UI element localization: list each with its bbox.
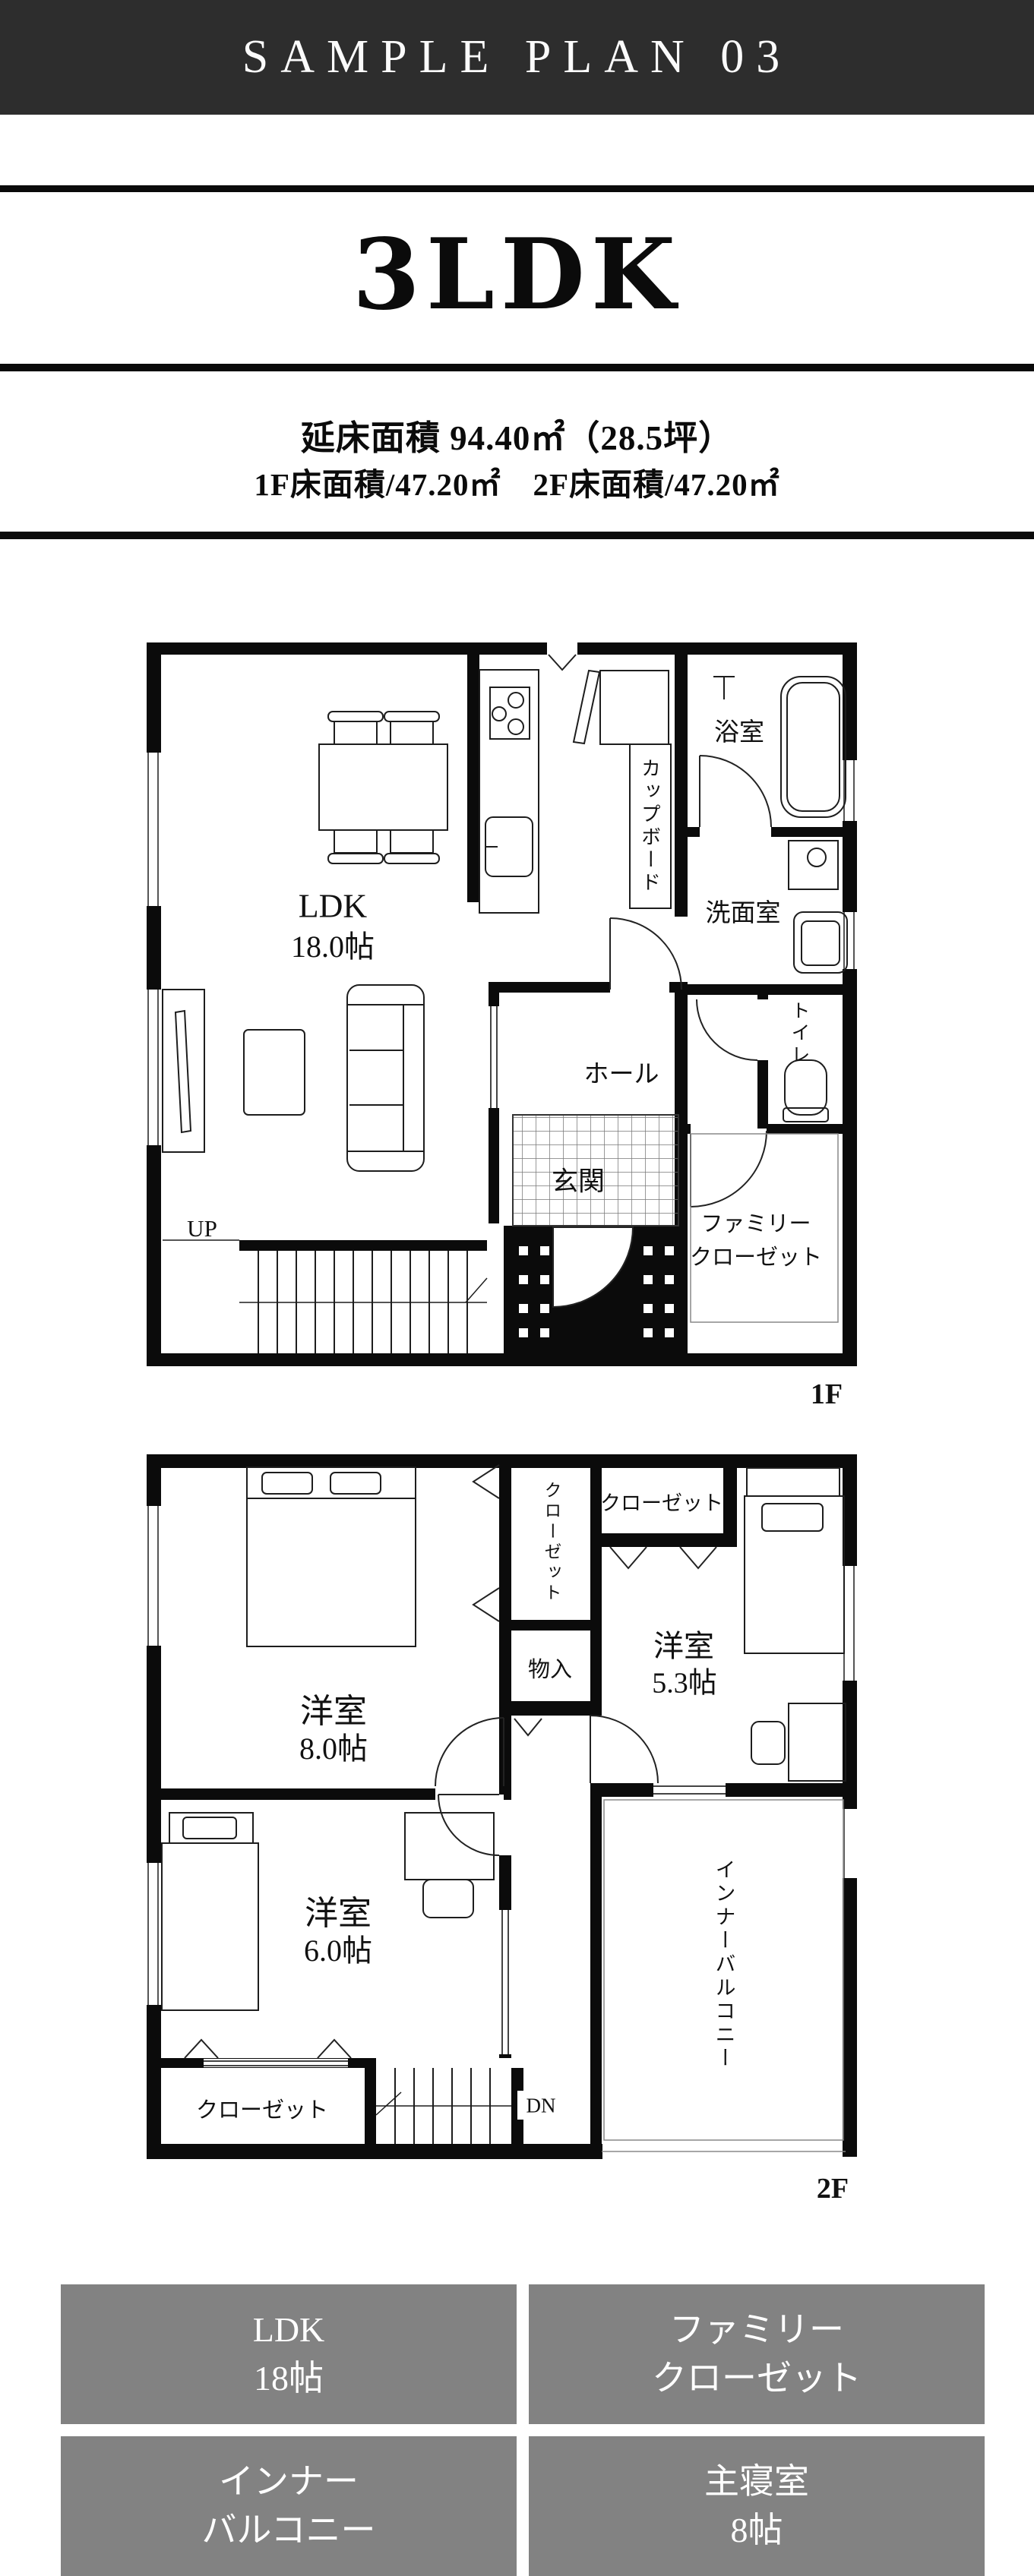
stairs-1f <box>163 1240 487 1353</box>
rug <box>244 1030 305 1115</box>
legend-family-closet-line1: ファミリー <box>669 2306 844 2354</box>
stairs-2f <box>376 2068 511 2144</box>
legend-box-family-closet: ファミリー クローゼット <box>529 2284 985 2424</box>
plan-type-title: 3LDK <box>0 214 1034 336</box>
sliding-door-hall <box>487 1006 501 1108</box>
desk-6 <box>405 1813 494 1880</box>
floor1-drawing <box>139 639 862 1413</box>
floor1-label: 1F <box>811 1378 843 1411</box>
bathtub <box>781 677 846 817</box>
room-label-cupboard: カップボード <box>636 758 664 895</box>
legend-master-bedroom-line2: 8帖 <box>731 2506 783 2555</box>
room-label-closet-a: クローゼット <box>538 1481 564 1604</box>
room-label-toilet: トイレ <box>785 1001 812 1067</box>
sofa <box>347 985 424 1171</box>
legend-inner-balcony-line1: インナー <box>219 2458 359 2506</box>
floor2-label: 2F <box>817 2172 849 2205</box>
stairs-up-label: UP <box>187 1215 217 1242</box>
room-label-inner-balcony: インナーバルコニー <box>710 1859 739 2071</box>
balcony-window <box>653 1782 726 1798</box>
room-label-entrance: 玄関 <box>552 1160 605 1199</box>
legend-box-inner-balcony: インナー バルコニー <box>61 2436 517 2576</box>
room-label-family-closet-2: クローゼット <box>690 1239 822 1271</box>
room-label-bath: 浴室 <box>714 712 764 748</box>
stairs-dn-label: DN <box>526 2095 556 2118</box>
closet-marks-2f <box>185 1465 716 2058</box>
room-size-ldk: 18.0帖 <box>291 922 375 966</box>
room-label-hall: ホール <box>584 1053 659 1090</box>
legend-master-bedroom-line1: 主寝室 <box>704 2458 809 2506</box>
dining-table <box>319 744 447 830</box>
room-label-closet-b: クローゼット <box>600 1487 723 1517</box>
room-size-bedroom8: 8.0帖 <box>299 1724 368 1768</box>
legend-ldk-line2: 18帖 <box>254 2354 324 2403</box>
legend-inner-balcony-line2: バルコニー <box>201 2506 375 2555</box>
room-label-closet-c: クローゼット <box>196 2092 328 2124</box>
legend-box-ldk: LDK 18帖 <box>61 2284 517 2424</box>
per-floor-area: 1F床面積/47.20㎡ 2F床面積/47.20㎡ <box>0 459 1034 504</box>
room-label-family-closet-1: ファミリー <box>700 1206 811 1238</box>
total-floor-area: 延床面積 94.40㎡（28.5坪） <box>0 410 1034 459</box>
divider-rule-top <box>0 185 1034 192</box>
room-label-ldk: LDK <box>299 887 367 926</box>
room-label-washroom: 洗面室 <box>706 892 781 929</box>
room-size-bedroom53: 5.3帖 <box>652 1659 717 1701</box>
header-banner: SAMPLE PLAN 03 <box>0 0 1034 115</box>
room-size-bedroom6: 6.0帖 <box>304 1926 372 1970</box>
toilet-fixture <box>785 1060 827 1115</box>
page-title: SAMPLE PLAN 03 <box>242 30 792 84</box>
refrigerator <box>600 671 669 744</box>
desk-53 <box>789 1703 846 1781</box>
back-door <box>547 641 577 656</box>
legend-box-master-bedroom: 主寝室 8帖 <box>529 2436 985 2576</box>
legend-ldk-line1: LDK <box>253 2306 325 2354</box>
single-bed-53 <box>747 1468 840 1496</box>
floor1-plan: LDK 18.0帖 カップボード 浴室 洗面室 ホール 玄関 トイレ ファミリー… <box>139 639 862 1413</box>
legend-family-closet-line2: クローゼット <box>652 2354 862 2403</box>
vanity <box>789 841 838 889</box>
divider-rule-bottom <box>0 532 1034 539</box>
room-label-storage: 物入 <box>528 1652 572 1684</box>
divider-rule-middle <box>0 364 1034 371</box>
floor2-plan: 洋室 8.0帖 クローゼット クローゼット 洋室 5.3帖 物入 洋室 6.0帖… <box>139 1454 862 2214</box>
